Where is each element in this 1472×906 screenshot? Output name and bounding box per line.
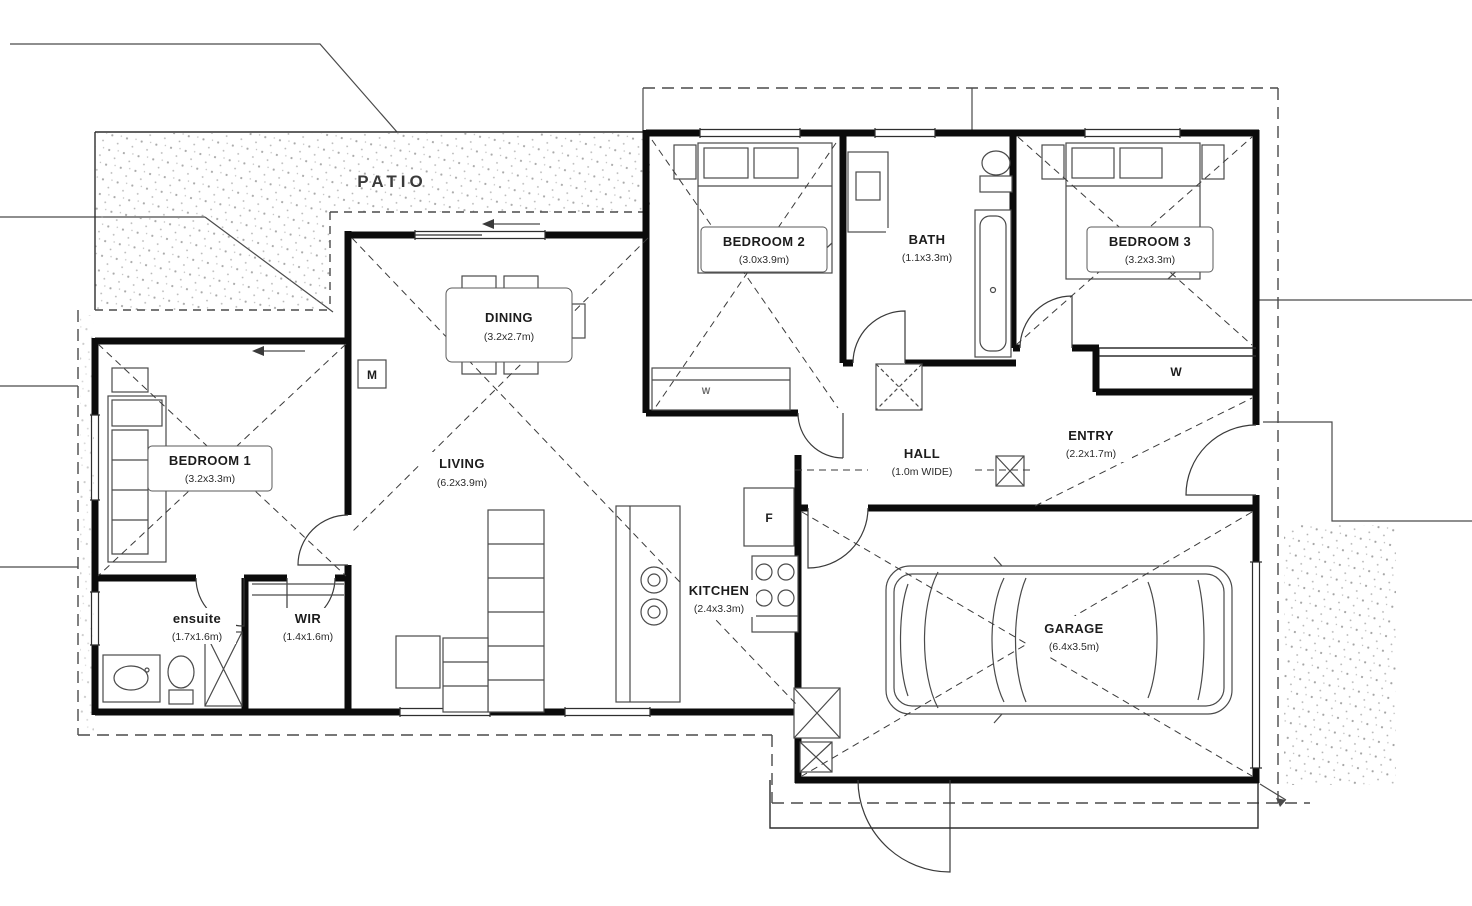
door-entry-front bbox=[1186, 425, 1256, 495]
label-garage: GARAGE (6.4x3.5m) bbox=[1028, 616, 1120, 656]
window-kitchen-south bbox=[565, 707, 650, 717]
bath-name: BATH bbox=[909, 232, 946, 247]
floor-plan-svg: F M bbox=[0, 0, 1472, 906]
porch-slab-edge bbox=[770, 780, 1258, 828]
kitchen-dims: (2.4x3.3m) bbox=[694, 603, 744, 615]
living-cabinet bbox=[396, 636, 488, 712]
label-living: LIVING (6.2x3.9m) bbox=[420, 452, 506, 492]
kitchen-stove bbox=[752, 556, 798, 632]
patio-label: PATIO bbox=[357, 172, 426, 191]
bedroom1-dims: (3.2x3.3m) bbox=[185, 473, 235, 485]
patio-stipple bbox=[95, 133, 650, 310]
label-entry: ENTRY (2.2x1.7m) bbox=[1050, 424, 1132, 462]
toilet-bath bbox=[980, 151, 1012, 192]
wir-shelves bbox=[252, 584, 344, 595]
label-ensuite: ensuite (1.7x1.6m) bbox=[158, 608, 236, 644]
door-garage-rear bbox=[858, 780, 950, 872]
label-bedroom1: BEDROOM 1 (3.2x3.3m) bbox=[148, 446, 272, 491]
window-bedroom3 bbox=[1085, 128, 1180, 138]
patio-sliding-door bbox=[415, 230, 545, 240]
label-hall: HALL (1.0m WIDE) bbox=[880, 443, 964, 479]
window-bedroom2 bbox=[700, 128, 800, 138]
label-bedroom3: BEDROOM 3 (3.2x3.3m) bbox=[1087, 227, 1213, 272]
meter-box: M bbox=[358, 360, 386, 388]
ensuite-dims: (1.7x1.6m) bbox=[172, 631, 222, 643]
driveway-stipple bbox=[1284, 525, 1396, 785]
bedroom3-name: BEDROOM 3 bbox=[1109, 234, 1191, 249]
label-wir: WIR (1.4x1.6m) bbox=[278, 608, 338, 644]
living-name: LIVING bbox=[439, 456, 485, 471]
ensuite-name: ensuite bbox=[173, 611, 221, 626]
floor-plan-page: F M bbox=[0, 0, 1472, 906]
window-bedroom1 bbox=[90, 415, 100, 500]
garage-dims: (6.4x3.5m) bbox=[1049, 641, 1099, 653]
dining-name: DINING bbox=[485, 310, 533, 325]
robe-bedroom2 bbox=[652, 368, 790, 410]
meter-label: M bbox=[367, 368, 377, 382]
bedroom2-name: BEDROOM 2 bbox=[723, 234, 805, 249]
label-kitchen: KITCHEN (2.4x3.3m) bbox=[682, 580, 756, 617]
entry-name: ENTRY bbox=[1068, 428, 1114, 443]
hall-dims: (1.0m WIDE) bbox=[892, 466, 953, 478]
entry-dims: (2.2x1.7m) bbox=[1066, 448, 1116, 460]
kitchen-island bbox=[616, 506, 680, 702]
bedroom2-dims: (3.0x3.9m) bbox=[739, 254, 789, 266]
bedroom3-dims: (3.2x3.3m) bbox=[1125, 254, 1175, 266]
hall-name: HALL bbox=[904, 446, 940, 461]
garage-hws-boxes bbox=[794, 688, 840, 772]
kitchen-name: KITCHEN bbox=[689, 583, 750, 598]
entry-service-box bbox=[996, 456, 1024, 486]
wir-dims: (1.4x1.6m) bbox=[283, 631, 333, 643]
door-bedroom2 bbox=[798, 413, 843, 458]
bath-vanity bbox=[848, 152, 888, 232]
label-bath: BATH (1.1x3.3m) bbox=[886, 228, 966, 266]
hall-linen-box bbox=[876, 364, 922, 410]
living-bookcase bbox=[488, 510, 544, 712]
label-bedroom2: BEDROOM 2 (3.0x3.9m) bbox=[701, 227, 827, 272]
bedroom1-name: BEDROOM 1 bbox=[169, 453, 251, 468]
wardrobe-label: W bbox=[1170, 365, 1182, 379]
living-dims: (6.2x3.9m) bbox=[437, 477, 487, 489]
wir-name: WIR bbox=[295, 611, 322, 626]
window-bath bbox=[875, 128, 935, 138]
door-bedroom3 bbox=[1020, 296, 1072, 348]
door-garage-internal bbox=[808, 508, 868, 568]
bath-dims: (1.1x3.3m) bbox=[902, 252, 952, 264]
window-ensuite bbox=[90, 592, 100, 645]
label-dining: DINING (3.2x2.7m) bbox=[446, 288, 572, 362]
toilet-ensuite bbox=[168, 656, 194, 704]
kitchen-fridge: F bbox=[744, 488, 794, 546]
door-bedroom1 bbox=[298, 515, 348, 565]
garage-door bbox=[1250, 562, 1262, 768]
garage-name: GARAGE bbox=[1044, 621, 1103, 636]
robe-label: W bbox=[702, 386, 711, 396]
ensuite-vanity bbox=[103, 655, 160, 702]
fridge-label: F bbox=[765, 511, 772, 525]
dining-dims: (3.2x2.7m) bbox=[484, 331, 534, 343]
door-bath bbox=[853, 311, 905, 363]
bathtub bbox=[975, 210, 1011, 357]
